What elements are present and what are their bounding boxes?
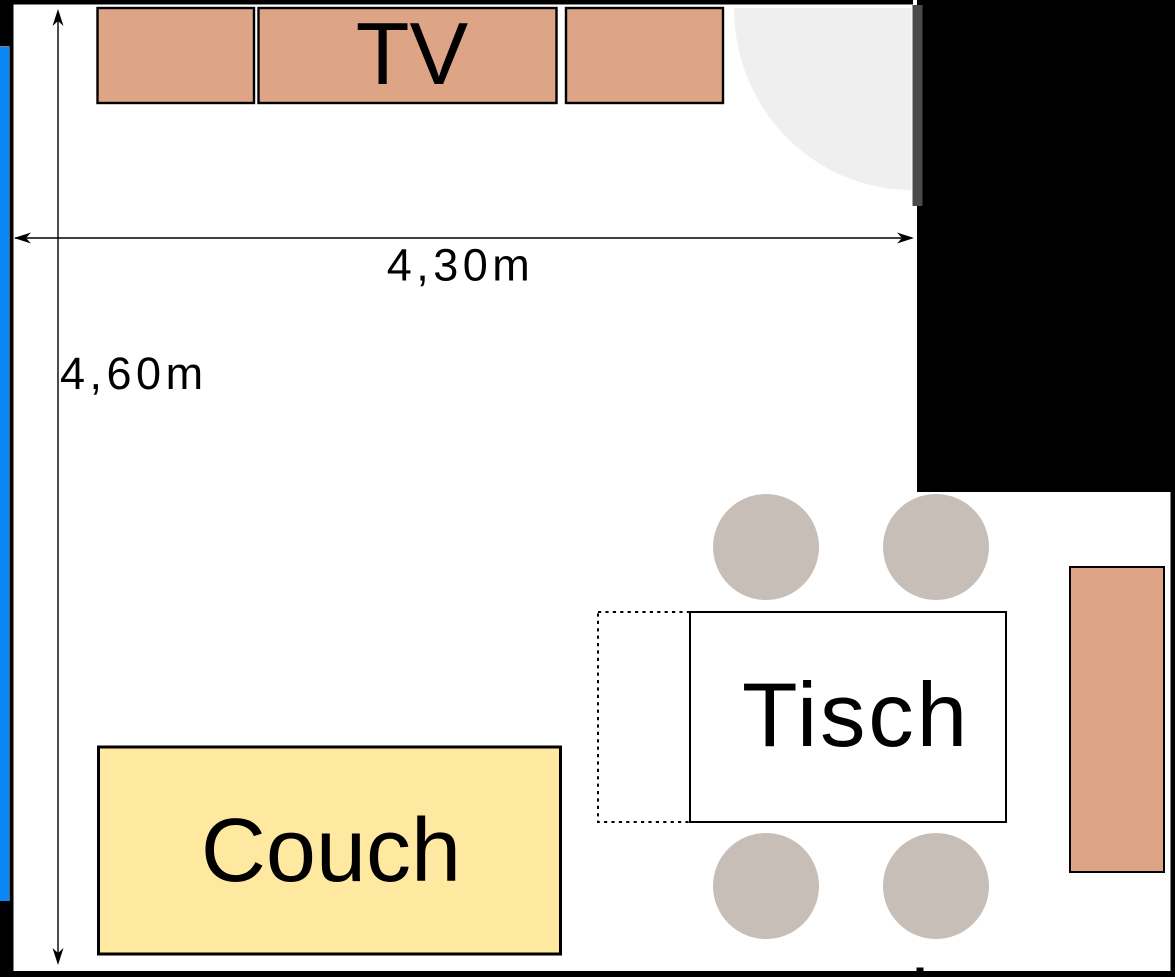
svg-text:4,60m: 4,60m [60, 348, 208, 399]
svg-text:Tisch: Tisch [742, 665, 970, 766]
svg-text:TV: TV [356, 4, 469, 103]
svg-text:4,30m: 4,30m [387, 240, 535, 291]
svg-text:Couch: Couch [201, 801, 461, 901]
